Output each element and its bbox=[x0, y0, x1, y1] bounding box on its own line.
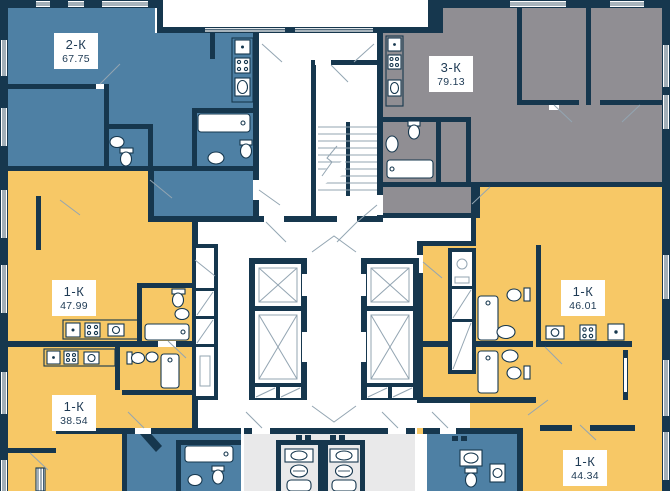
sink-icon bbox=[285, 449, 313, 462]
stove-icon bbox=[235, 58, 250, 73]
sink-icon bbox=[108, 324, 124, 336]
vent-shaft-icon bbox=[255, 387, 276, 398]
toilet-icon bbox=[408, 121, 420, 139]
sink-icon bbox=[235, 78, 250, 96]
sink-icon bbox=[330, 449, 358, 462]
apartment-label-1k-47-99[interactable]: 1-К 47.99 bbox=[52, 280, 96, 316]
bathtub-icon bbox=[185, 446, 233, 462]
bathtub-icon bbox=[478, 351, 498, 393]
toilet-icon bbox=[336, 465, 353, 477]
apartment-type: 3-К bbox=[435, 60, 467, 76]
floor-plan: 2-К 67.75 3-К 79.13 1-К 47.99 1-К 38.54 … bbox=[0, 0, 670, 491]
apartment-area: 47.99 bbox=[58, 300, 90, 313]
elevator-right-bank bbox=[361, 258, 419, 400]
sink-icon bbox=[502, 350, 518, 362]
shower-tray-icon bbox=[287, 480, 311, 491]
sink-icon bbox=[208, 152, 224, 164]
washing-machine-icon bbox=[452, 252, 472, 370]
fridge-icon bbox=[608, 324, 624, 340]
apartment-type: 2-К bbox=[60, 37, 92, 53]
sink-icon bbox=[188, 475, 202, 486]
vent-shaft-icon bbox=[280, 387, 301, 398]
vent-shaft-icon bbox=[367, 387, 388, 398]
vent-shaft-icon bbox=[392, 387, 413, 398]
sink-icon bbox=[388, 80, 401, 96]
apartment-type: 1-К bbox=[58, 399, 90, 415]
bathtub-icon bbox=[478, 296, 498, 340]
apartment-type: 1-К bbox=[567, 284, 599, 300]
stove-icon bbox=[85, 323, 100, 337]
apartment-label-2k[interactable]: 2-К 67.75 bbox=[54, 33, 98, 69]
bathtub-icon bbox=[387, 160, 433, 178]
toilet-icon bbox=[507, 366, 530, 379]
fridge-icon bbox=[47, 351, 60, 364]
apartment-area: 46.01 bbox=[567, 300, 599, 313]
sink-icon bbox=[146, 352, 158, 362]
sink-icon bbox=[110, 137, 124, 148]
toilet-icon bbox=[465, 468, 477, 487]
fridge-icon bbox=[66, 323, 80, 337]
vent-shaft-icon bbox=[196, 248, 214, 396]
elevator-shaft-icon bbox=[255, 311, 301, 383]
sink-icon bbox=[386, 136, 398, 152]
stove-icon bbox=[580, 325, 596, 340]
elevator-left-bank bbox=[249, 258, 307, 400]
washing-machine-icon bbox=[490, 464, 505, 482]
apartment-label-1k-46-01[interactable]: 1-К 46.01 bbox=[561, 280, 605, 316]
bathtub-icon bbox=[161, 354, 179, 388]
toilet-icon bbox=[127, 352, 145, 364]
stove-icon bbox=[64, 351, 78, 364]
fridge-icon bbox=[235, 40, 250, 54]
bathtub-icon bbox=[145, 324, 189, 340]
elevator-shaft-icon bbox=[255, 264, 301, 306]
apartment-type: 1-К bbox=[58, 284, 90, 300]
apartment-label-3k[interactable]: 3-К 79.13 bbox=[429, 56, 473, 92]
sink-icon bbox=[546, 326, 564, 339]
apartment-area: 79.13 bbox=[435, 76, 467, 89]
stove-icon bbox=[388, 55, 401, 69]
toilet-icon bbox=[507, 288, 530, 301]
elevator-shaft-icon bbox=[367, 311, 413, 383]
apartment-area: 67.75 bbox=[60, 53, 92, 66]
sink-icon bbox=[497, 326, 515, 339]
fridge-icon bbox=[388, 38, 401, 51]
apartment-label-1k-44-34[interactable]: 1-К 44.34 bbox=[563, 450, 607, 486]
sink-icon bbox=[84, 352, 99, 364]
toilet-icon bbox=[240, 140, 252, 158]
corridor bbox=[417, 403, 470, 428]
apartment-type: 1-К bbox=[569, 454, 601, 470]
radiator-icon bbox=[36, 468, 45, 491]
apartment-area: 44.34 bbox=[569, 470, 601, 483]
sink-icon bbox=[175, 309, 189, 320]
shower-tray-icon bbox=[332, 480, 356, 491]
floor-plan-canvas bbox=[0, 0, 670, 491]
toilet-icon bbox=[291, 465, 308, 477]
apartment-area: 38.54 bbox=[58, 415, 90, 428]
toilet-icon bbox=[212, 466, 224, 484]
bathtub-icon bbox=[198, 114, 250, 132]
sink-icon bbox=[460, 450, 482, 466]
elevator-shaft-icon bbox=[367, 264, 413, 306]
apartment-label-1k-38-54[interactable]: 1-К 38.54 bbox=[52, 395, 96, 431]
